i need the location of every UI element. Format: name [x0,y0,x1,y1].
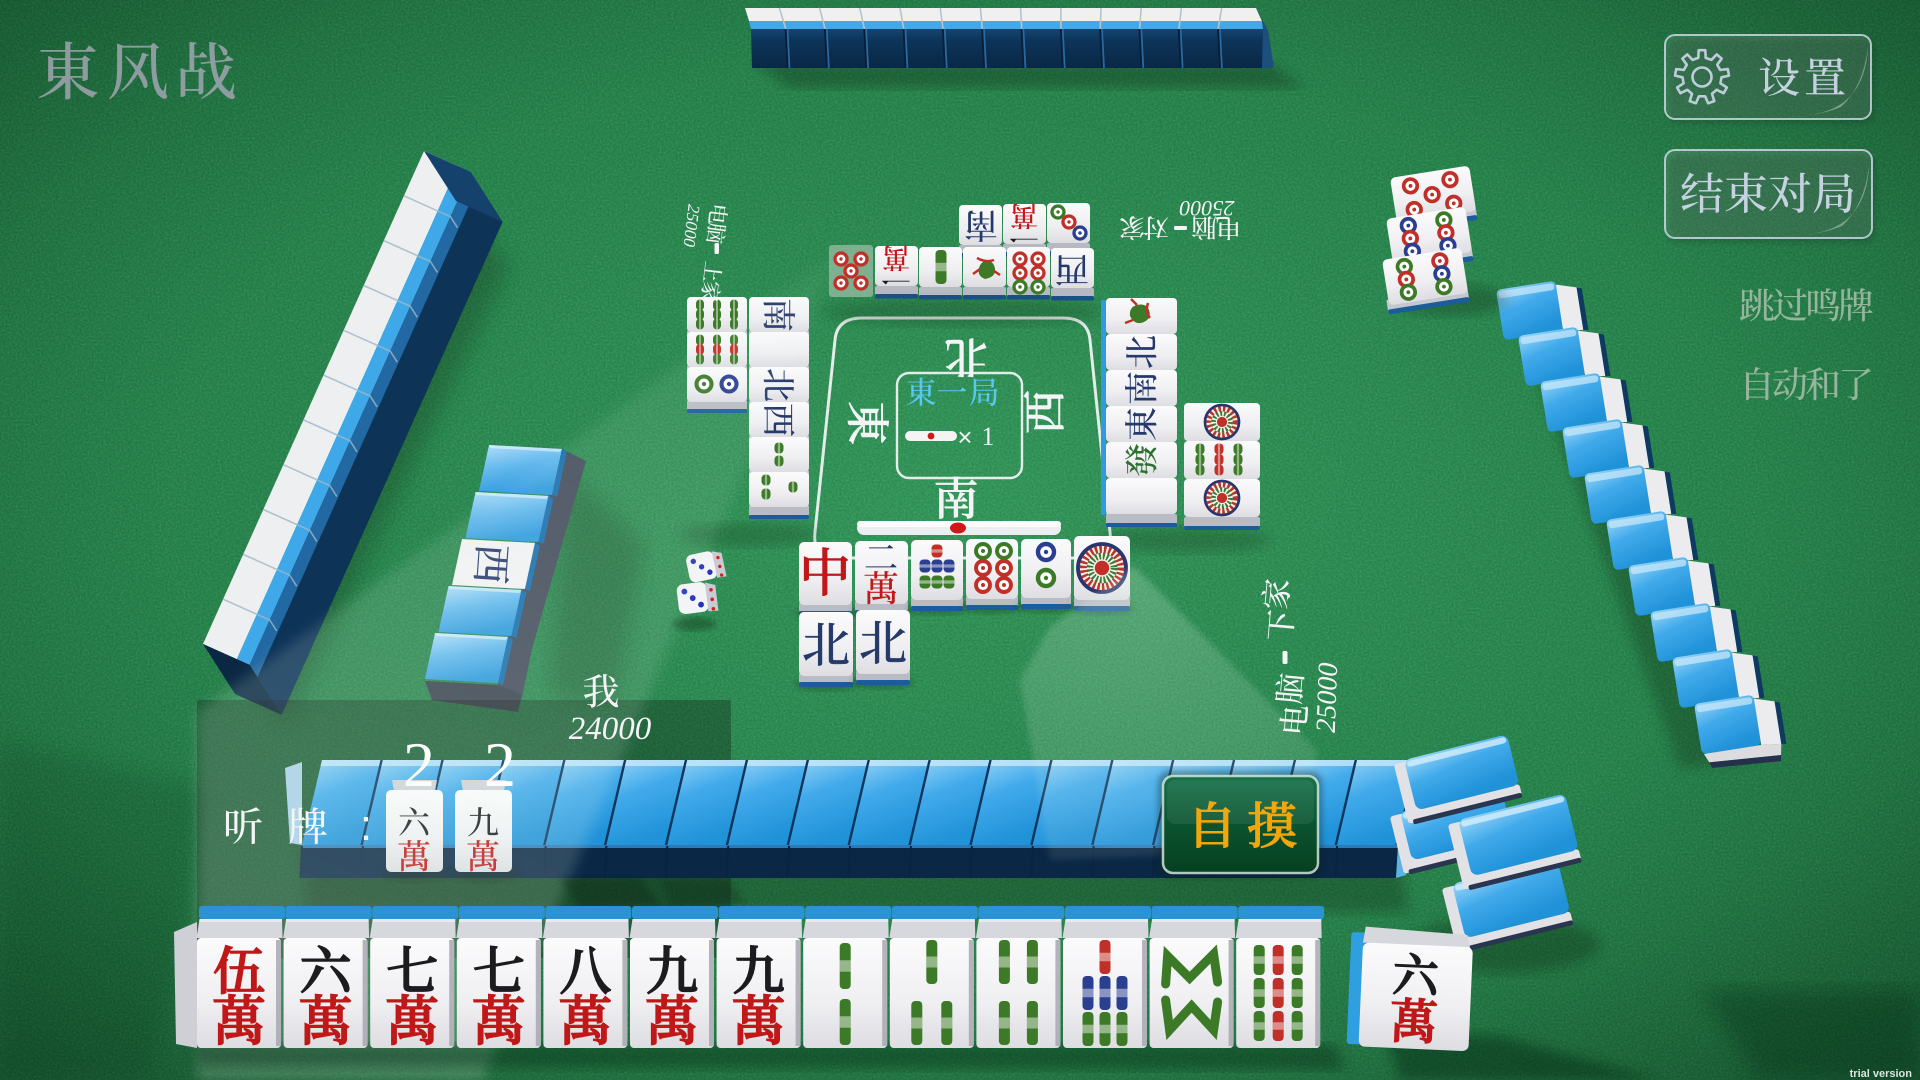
svg-text:1: 1 [982,422,995,451]
svg-text:24000: 24000 [569,711,652,747]
svg-text:25000: 25000 [1180,196,1235,221]
svg-text:25000: 25000 [1311,662,1344,733]
svg-text:×: × [957,422,972,452]
svg-text:trial version: trial version [1850,1068,1913,1080]
